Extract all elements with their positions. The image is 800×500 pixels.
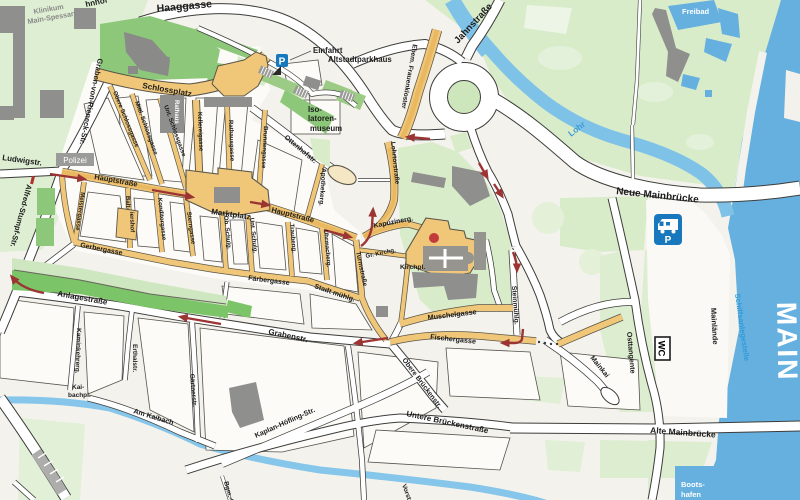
- svg-text:Freibad: Freibad: [682, 7, 710, 16]
- svg-text:Mainlände: Mainlände: [709, 308, 720, 345]
- svg-text:Altstadtparkhaus: Altstadtparkhaus: [328, 55, 392, 64]
- svg-text:P: P: [665, 235, 672, 246]
- svg-text:latoren-: latoren-: [308, 114, 337, 123]
- svg-text:WC: WC: [656, 341, 667, 357]
- svg-text:Erthalstr.: Erthalstr.: [131, 344, 138, 372]
- svg-text:Kirchpl.: Kirchpl.: [400, 264, 425, 271]
- svg-text:Polizei: Polizei: [63, 156, 87, 165]
- svg-text:Kellereigasse: Kellereigasse: [196, 112, 204, 152]
- svg-text:hafen: hafen: [681, 490, 701, 499]
- svg-text:MAIN: MAIN: [771, 302, 800, 382]
- svg-text:iershof: iershof: [128, 212, 136, 234]
- svg-text:P: P: [279, 57, 286, 68]
- svg-text:museum: museum: [310, 124, 342, 133]
- svg-text:Einfahrt: Einfahrt: [313, 46, 343, 55]
- svg-text:Rathausgasse: Rathausgasse: [227, 120, 235, 162]
- svg-text:Balt-: Balt-: [124, 196, 131, 210]
- svg-text:Iso-: Iso-: [308, 105, 322, 114]
- svg-text:Boots-: Boots-: [681, 480, 705, 489]
- svg-text:bachpl.: bachpl.: [68, 392, 91, 399]
- svg-text:Kai-: Kai-: [72, 384, 84, 391]
